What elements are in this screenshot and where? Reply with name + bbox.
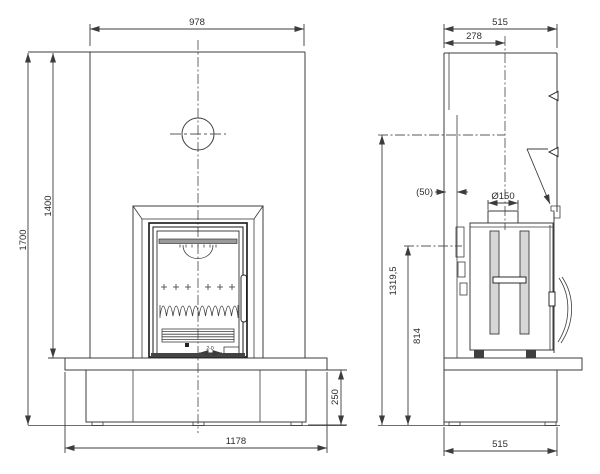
door-scale-ticks <box>180 245 216 248</box>
technical-drawing: 2-0 978 1400 <box>0 0 600 474</box>
dim-front-width-top: 978 <box>189 17 205 28</box>
dim-front-opening-height: 1400 <box>43 195 54 216</box>
front-stove-door: 2-0 <box>149 223 247 357</box>
leader-arrow <box>527 149 550 204</box>
dim-side-rear-height: 1319,5 <box>388 266 399 295</box>
door-air-control-label: 2-0 <box>206 346 213 352</box>
door-glass-art: 2-0 <box>159 239 239 355</box>
front-dimensions: 978 1400 1700 250 1178 <box>18 17 347 453</box>
dim-side-outlet-height: 814 <box>412 328 423 344</box>
door-wave <box>160 305 238 318</box>
dim-side-wall-gap: (50) <box>416 187 433 198</box>
side-view: 515 278 (50) Ø150 1319,5 814 515 <box>378 17 582 456</box>
door-handle <box>241 275 247 322</box>
dim-side-flue-offset: 278 <box>466 31 482 42</box>
dim-front-base-width: 1178 <box>226 436 246 447</box>
side-door-handle <box>549 277 572 343</box>
dim-side-base-depth: 515 <box>492 439 508 450</box>
front-hearth-base <box>28 358 346 426</box>
flue-clip <box>551 206 560 218</box>
dim-side-flue-diameter: Ø150 <box>491 191 514 202</box>
dim-side-depth-top: 515 <box>492 17 508 28</box>
side-hearth-base <box>378 358 582 426</box>
door-air-knob <box>185 343 189 347</box>
front-view: 2-0 978 1400 <box>18 17 347 453</box>
side-stove-body <box>456 211 572 358</box>
dim-front-base-height: 250 <box>330 389 341 405</box>
dim-front-total-height: 1700 <box>18 229 29 250</box>
drawing-canvas: 2-0 978 1400 <box>0 0 600 474</box>
side-wall-panel <box>444 53 557 425</box>
